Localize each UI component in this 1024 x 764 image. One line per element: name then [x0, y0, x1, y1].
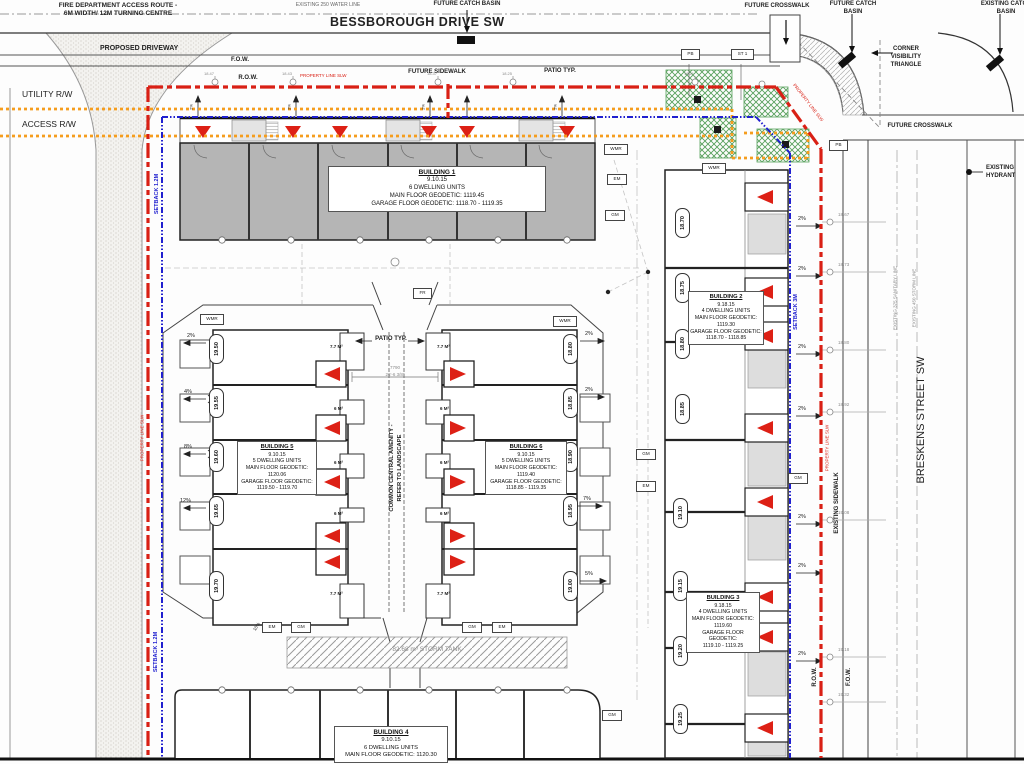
building-4-label: BUILDING 4 9.10.15 6 DWELLING UNITS MAIN…: [334, 726, 448, 763]
elev-w-5: 19.70: [214, 579, 220, 593]
patio-area-b6-1: 7.7 M²: [437, 344, 450, 349]
slope-w-3: 8%: [184, 444, 192, 450]
elev-c3-4: 19.25: [678, 712, 684, 726]
building-3-label: BUILDING 3 9.18.15 4 DWELLING UNITS MAIN…: [686, 592, 760, 653]
spot-east-5: 19.08: [838, 510, 849, 515]
fire-route-label-1: FIRE DEPARTMENT ACCESS ROUTE -: [59, 2, 177, 9]
em-box-1: EM: [607, 174, 627, 185]
wmr-box-3: WMR: [200, 314, 224, 325]
elev-w-3: 19.60: [214, 450, 220, 464]
building-4-main: MAIN FLOOR GEODETIC: 1120.30: [336, 752, 446, 760]
building-6-main-label: MAIN FLOOR GEODETIC:: [487, 465, 565, 472]
building-6-garage-value: 1118.85 - 1119.35: [487, 485, 565, 492]
building-4-units: 6 DWELLING UNITS: [336, 745, 446, 753]
slope-east-2: 2%: [798, 266, 806, 272]
st1-box: ST 1: [731, 49, 754, 60]
building-2-3-footprint: [665, 170, 788, 758]
building-4-title: BUILDING 4: [336, 729, 446, 737]
elev-e-1: 18.80: [568, 342, 574, 356]
future-crosswalk-label: FUTURE CROSSWALK: [745, 3, 810, 9]
building-5-main-label: MAIN FLOOR GEODETIC:: [239, 465, 315, 472]
elev-c2-3: 18.80: [680, 337, 686, 351]
elev-w-2: 19.55: [214, 396, 220, 410]
elev-pill-w-2: 19.55: [209, 388, 224, 418]
slope-east-6: 2%: [798, 563, 806, 569]
proposed-driveway-label: PROPOSED DRIVEWAY: [100, 45, 178, 52]
building-5-title: BUILDING 5: [239, 444, 315, 452]
bessborough-street-label: BESSBOROUGH DRIVE SW: [330, 15, 505, 29]
elev-c3-3: 19.20: [678, 644, 684, 658]
patio-area-b5-3: 6 M²: [334, 460, 343, 465]
future-crosswalk-east-label: FUTURE CROSSWALK: [888, 123, 953, 129]
existing-hydrant-label-2: HYDRANT: [986, 173, 1015, 179]
spot-east-4: 18.92: [838, 402, 849, 407]
building-5-main-value: 1120.06: [239, 472, 315, 479]
elev-w-4: 19.65: [214, 504, 220, 518]
gm-box-1: GM: [605, 210, 625, 221]
building-1-date: 9.10.15: [330, 177, 544, 185]
slope-e-1: 2%: [585, 331, 593, 337]
building-6-garage-label: GARAGE FLOOR GEODETIC:: [487, 479, 565, 486]
building-2-date: 9.18.15: [690, 302, 762, 309]
slope-w-4: 12%: [180, 498, 191, 504]
future-catch-basin-ne-label-1: FUTURE CATCH: [830, 1, 877, 7]
building-6-units: 5 DWELLING UNITS: [487, 458, 565, 465]
building-3-main-value: 1119.60: [688, 623, 758, 630]
gm-box-3: GM: [291, 622, 311, 633]
em-box-4: EM: [492, 622, 512, 633]
building-6-main-value: 1119.40: [487, 472, 565, 479]
gm-box-6: GM: [788, 473, 808, 484]
building-6-label: BUILDING 6 9.10.15 5 DWELLING UNITS MAIN…: [485, 441, 567, 495]
existing-hydrant-label-1: EXISTING: [986, 165, 1014, 171]
spot-top-4: 18.25: [502, 71, 512, 76]
pb-box-2: PB: [829, 140, 848, 151]
slope-east-3: 2%: [798, 344, 806, 350]
elev-pill-c3-4: 19.25: [673, 704, 688, 734]
elev-e-3: 18.90: [568, 450, 574, 464]
sanitary-line-label: EXISTING 375 SANITARY LINE: [893, 266, 898, 330]
storm-line-label: EXISTING 450 STORM LINE: [912, 269, 917, 327]
breskens-street-label: BRESKENS STREET SW: [915, 357, 927, 484]
elev-pill-e-5: 19.00: [563, 571, 578, 601]
patio-typ-north-label: PATIO TYP.: [544, 68, 576, 74]
patio-area-b6-3: 6 M²: [440, 460, 449, 465]
em-box-3: EM: [262, 622, 282, 633]
patio-area-b5-5: 7.7 M²: [330, 591, 343, 596]
building-2-main-label: MAIN FLOOR GEODETIC:: [690, 315, 762, 322]
slope-e-3: 7%: [583, 496, 591, 502]
slope-w-2: 4%: [184, 389, 192, 395]
fow-label: F.O.W.: [231, 57, 249, 63]
patio-area-b5-2: 6 M²: [334, 406, 343, 411]
wmr-box-2: WMR: [702, 163, 726, 174]
spot-top-2: 18.43: [282, 71, 292, 76]
setback-12m-south-label: SETBACK 1.2M: [153, 632, 159, 672]
building-1-label: BUILDING 1 9.10.15 6 DWELLING UNITS MAIN…: [328, 166, 546, 212]
spot-east-6: 19.18: [838, 647, 849, 652]
building-6-title: BUILDING 6: [487, 444, 565, 452]
building-4-date: 9.10.15: [336, 737, 446, 745]
corner-visibility-label-1: CORNER: [893, 46, 919, 52]
elev-pill-e-1: 18.80: [563, 334, 578, 364]
property-line-east-label: PROPERTY LINE SLW: [825, 425, 830, 472]
building-3-garage-value: 1119.10 - 1119.25: [688, 643, 758, 650]
building-6-date: 9.10.15: [487, 452, 565, 459]
slope-n-3: 2%: [421, 104, 426, 110]
slope-n-1: 2%: [189, 104, 194, 110]
elev-c3-2: 19.15: [678, 579, 684, 593]
elev-pill-w-5: 19.70: [209, 571, 224, 601]
corner-visibility-label-2: VISIBILITY: [891, 54, 921, 60]
dimension-mm: 7790: [390, 365, 400, 370]
elev-e-5: 19.00: [568, 579, 574, 593]
common-amenity-line-1: COMMON CENTRAL AMENITY -: [388, 424, 396, 511]
pb-box-1: PB: [681, 49, 700, 60]
site-plan-canvas: FIRE DEPARTMENT ACCESS ROUTE - 6M WIDTH/…: [0, 0, 1024, 764]
gm-box-2: GM: [636, 449, 656, 460]
water-line-label: EXISTING 250 WATER LINE: [296, 2, 360, 8]
slope-n-4: 2%: [553, 104, 558, 110]
elev-c2-4: 18.85: [680, 402, 686, 416]
patio-area-b5-1: 7.7 M²: [330, 344, 343, 349]
corner-visibility-label-3: TRIANGLE: [891, 62, 922, 68]
wmr-box-1: WMR: [604, 144, 628, 155]
wmr-box-4: WMR: [553, 316, 577, 327]
spot-east-7: 19.32: [838, 692, 849, 697]
property-line-north-label: PROPERTY LINE SLW: [300, 73, 347, 78]
slope-n-2: 2%: [287, 104, 292, 110]
elev-pill-w-3: 19.60: [209, 442, 224, 472]
elev-pill-c3-1: 19.10: [673, 498, 688, 528]
setback-12m-north-label: SETBACK 1.2M: [154, 174, 160, 214]
building-2-main-value: 1119.30: [690, 322, 762, 329]
elev-c3-1: 19.10: [678, 506, 684, 520]
building-2-units: 4 DWELLING UNITS: [690, 308, 762, 315]
access-rw-label: ACCESS R/W: [22, 119, 76, 129]
slope-east-4: 2%: [798, 406, 806, 412]
elev-pill-w-4: 19.65: [209, 496, 224, 526]
building-1-main: MAIN FLOOR GEODETIC: 1119.45: [330, 193, 544, 201]
building-5-label: BUILDING 5 9.10.15 5 DWELLING UNITS MAIN…: [237, 441, 317, 495]
elev-pill-c2-1: 18.70: [675, 208, 690, 238]
elev-c2-1: 18.70: [680, 216, 686, 230]
building-2-garage-value: 1118.70 - 1118.85: [690, 335, 762, 342]
row-label: R.O.W.: [238, 75, 257, 81]
building-5-date: 9.10.15: [239, 452, 315, 459]
fire-route-label-2: 6M WIDTH/ 12M TURNING CENTRE: [64, 10, 172, 17]
elev-pill-e-4: 18.95: [563, 496, 578, 526]
building-5-garage-value: 1119.50 - 1119.70: [239, 485, 315, 492]
building-3-title: BUILDING 3: [688, 595, 758, 603]
patio-area-b5-4: 6 M²: [334, 511, 343, 516]
spot-east-2: 18.73: [838, 262, 849, 267]
building-1-garage: GARAGE FLOOR GEODETIC: 1118.70 - 1119.35: [330, 201, 544, 209]
setback-3m-label: SETBACK 3M: [793, 294, 799, 330]
building-3-main-label: MAIN FLOOR GEODETIC:: [688, 616, 758, 623]
row-east-label: R.O.W.: [812, 667, 818, 686]
spot-east-3: 18.80: [838, 340, 849, 345]
fow-east-label: F.O.W.: [846, 668, 852, 686]
elev-pill-w-1: 19.50: [209, 334, 224, 364]
fr-box: FR: [413, 288, 432, 299]
existing-sidewalk-label: EXISTING SIDEWALK: [834, 472, 840, 533]
patio-typ-center-label: PATIO TYP.: [375, 336, 407, 342]
elev-pill-e-2: 18.85: [563, 388, 578, 418]
spot-top-5: 18.21: [684, 71, 694, 76]
slope-east-7: 2%: [798, 651, 806, 657]
existing-catch-basin-label-2: BASIN: [997, 9, 1016, 15]
gm-box-5: GM: [602, 710, 622, 721]
slope-east-5: 2%: [798, 514, 806, 520]
future-catch-basin-label: FUTURE CATCH BASIN: [434, 1, 501, 7]
storm-tank-label: 82.68 m³ STORM TANK: [392, 646, 461, 653]
building-3-date: 9.18.15: [688, 603, 758, 610]
slope-w-1: 2%: [187, 333, 195, 339]
building-1-units: 6 DWELLING UNITS: [330, 185, 544, 193]
building-2-title: BUILDING 2: [690, 294, 762, 302]
elev-w-1: 19.50: [214, 342, 220, 356]
building-5-units: 5 DWELLING UNITS: [239, 458, 315, 465]
elev-e-4: 18.95: [568, 504, 574, 518]
future-catch-basin-ne-label-2: BASIN: [844, 9, 863, 15]
building-2-label: BUILDING 2 9.18.15 4 DWELLING UNITS MAIN…: [688, 291, 764, 345]
patio-area-b6-5: 7.7 M²: [437, 591, 450, 596]
slope-e-4: 5%: [585, 571, 593, 577]
building-3-garage-label: GARAGE FLOOR GEODETIC:: [688, 630, 758, 644]
gm-box-4: GM: [462, 622, 482, 633]
property-line-west-label: PROPERTY LINE SLW: [140, 415, 145, 462]
spot-east-1: 18.67: [838, 212, 849, 217]
common-amenity-line-2: REFER TO LANDSCAPE: [396, 424, 404, 511]
em-box-2: EM: [636, 481, 656, 492]
dimension-ft: 26'-6 3/8": [386, 372, 405, 377]
slope-e-2: 2%: [585, 387, 593, 393]
building-2-garage-label: GARAGE FLOOR GEODETIC:: [690, 329, 762, 336]
elev-c2-2: 18.75: [680, 281, 686, 295]
building-1-title: BUILDING 1: [330, 169, 544, 177]
elev-e-2: 18.85: [568, 396, 574, 410]
slope-east-1: 2%: [798, 216, 806, 222]
patio-area-b6-4: 6 M²: [440, 511, 449, 516]
utility-rw-label: UTILITY R/W: [22, 89, 72, 99]
existing-catch-basin-label-1: EXISTING CATCH: [981, 1, 1024, 7]
building-5-garage-label: GARAGE FLOOR GEODETIC:: [239, 479, 315, 486]
spot-top-3: 18.37: [427, 71, 437, 76]
elev-pill-c2-4: 18.85: [675, 394, 690, 424]
building-3-units: 4 DWELLING UNITS: [688, 609, 758, 616]
spot-top-1: 18.47: [204, 71, 214, 76]
patio-area-b6-2: 6 M²: [440, 406, 449, 411]
common-amenity-label: COMMON CENTRAL AMENITY - REFER TO LANDSC…: [388, 424, 404, 511]
